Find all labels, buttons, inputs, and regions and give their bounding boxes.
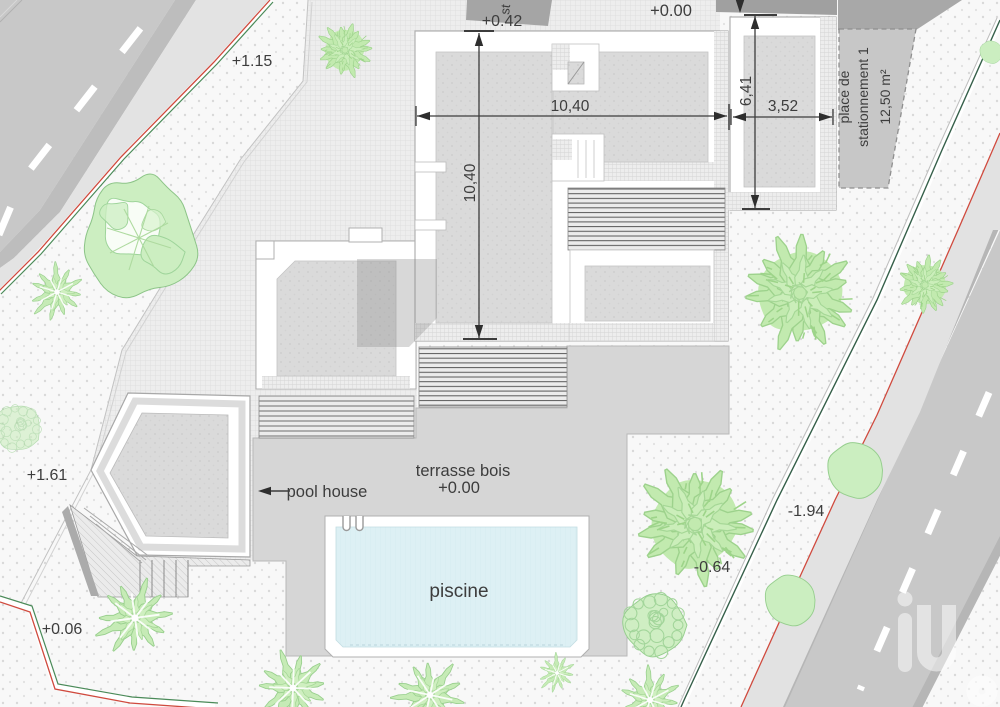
- svg-text:+0.06: +0.06: [42, 621, 83, 638]
- svg-text:+0.42: +0.42: [482, 13, 523, 30]
- svg-text:+0.00: +0.00: [650, 2, 692, 20]
- svg-text:12,50 m²: 12,50 m²: [877, 69, 893, 125]
- svg-text:+1.15: +1.15: [232, 53, 273, 70]
- svg-text:+1.61: +1.61: [27, 467, 68, 484]
- svg-text:-0.64: -0.64: [694, 559, 731, 576]
- svg-text:place de: place de: [836, 70, 852, 123]
- svg-text:piscine: piscine: [429, 581, 488, 602]
- svg-text:pool house: pool house: [287, 483, 368, 501]
- svg-text:10,40: 10,40: [462, 163, 479, 202]
- svg-text:+0.00: +0.00: [438, 479, 480, 497]
- svg-text:-1.94: -1.94: [788, 503, 825, 520]
- svg-text:stationnement 1: stationnement 1: [855, 47, 871, 147]
- svg-text:terrasse bois: terrasse bois: [416, 462, 510, 480]
- svg-text:3,52: 3,52: [768, 98, 798, 115]
- svg-text:10,40: 10,40: [551, 98, 590, 115]
- svg-text:6,41: 6,41: [738, 76, 755, 106]
